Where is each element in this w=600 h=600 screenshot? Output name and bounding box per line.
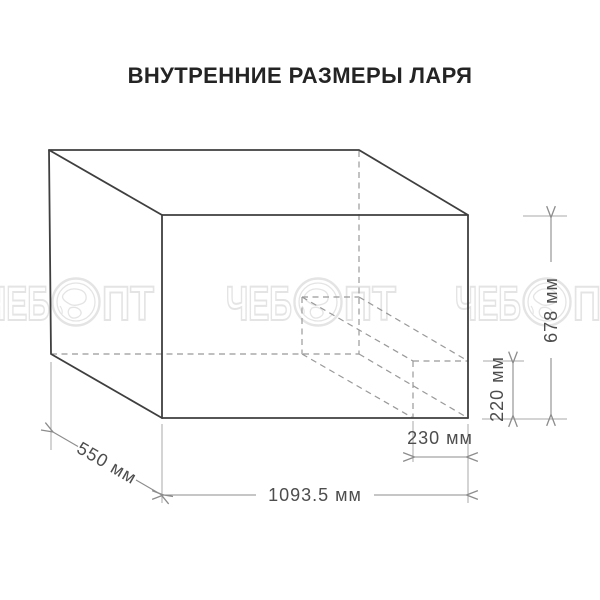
box-hidden-edges bbox=[51, 151, 468, 418]
dimension-depth-label: 550 мм bbox=[74, 438, 141, 488]
dimension-height-label: 678 мм bbox=[541, 277, 561, 343]
dimension-diagram: 550 мм 1093.5 мм 230 мм 220 мм 678 мм bbox=[0, 0, 600, 600]
box-solid-edges bbox=[49, 150, 468, 418]
page-title: ВНУТРЕННИЕ РАЗМЕРЫ ЛАРЯ bbox=[0, 63, 600, 89]
dimension-step-width-label: 230 мм bbox=[407, 428, 473, 448]
dimension-width-label: 1093.5 мм bbox=[268, 485, 362, 505]
dimension-step-height-label: 220 мм bbox=[487, 356, 507, 422]
